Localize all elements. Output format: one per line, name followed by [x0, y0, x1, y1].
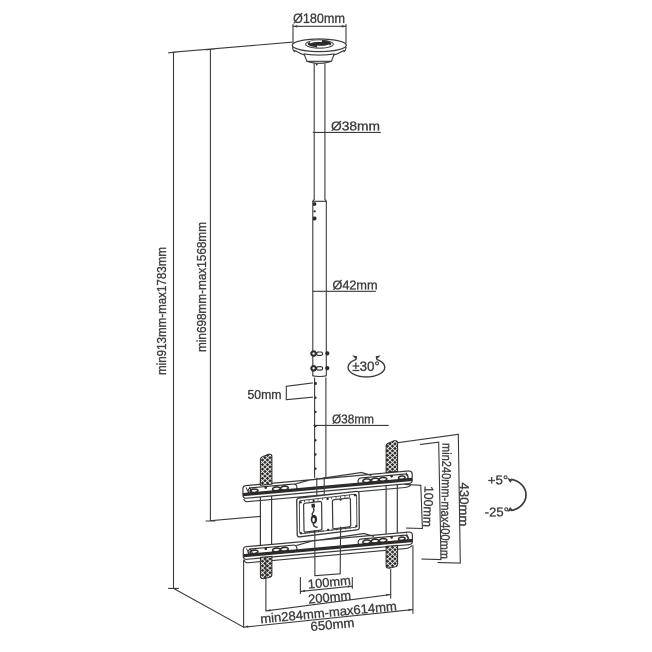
svg-text:+5°: +5° [488, 472, 509, 487]
svg-text:±30°: ±30° [352, 359, 380, 374]
svg-text:min698mm-max1568mm: min698mm-max1568mm [194, 222, 209, 352]
svg-text:430mm: 430mm [456, 482, 472, 526]
svg-text:Ø42mm: Ø42mm [333, 277, 378, 292]
svg-text:-25°: -25° [485, 504, 509, 519]
svg-text:Ø38mm: Ø38mm [332, 412, 374, 427]
svg-text:min240mm-max400mm: min240mm-max400mm [437, 443, 454, 559]
svg-text:100mm: 100mm [420, 486, 436, 527]
svg-text:Ø38mm: Ø38mm [331, 118, 380, 133]
svg-text:50mm: 50mm [248, 388, 282, 402]
svg-text:min913mm-max1783mm: min913mm-max1783mm [154, 247, 169, 375]
svg-text:Ø180mm: Ø180mm [293, 11, 345, 26]
